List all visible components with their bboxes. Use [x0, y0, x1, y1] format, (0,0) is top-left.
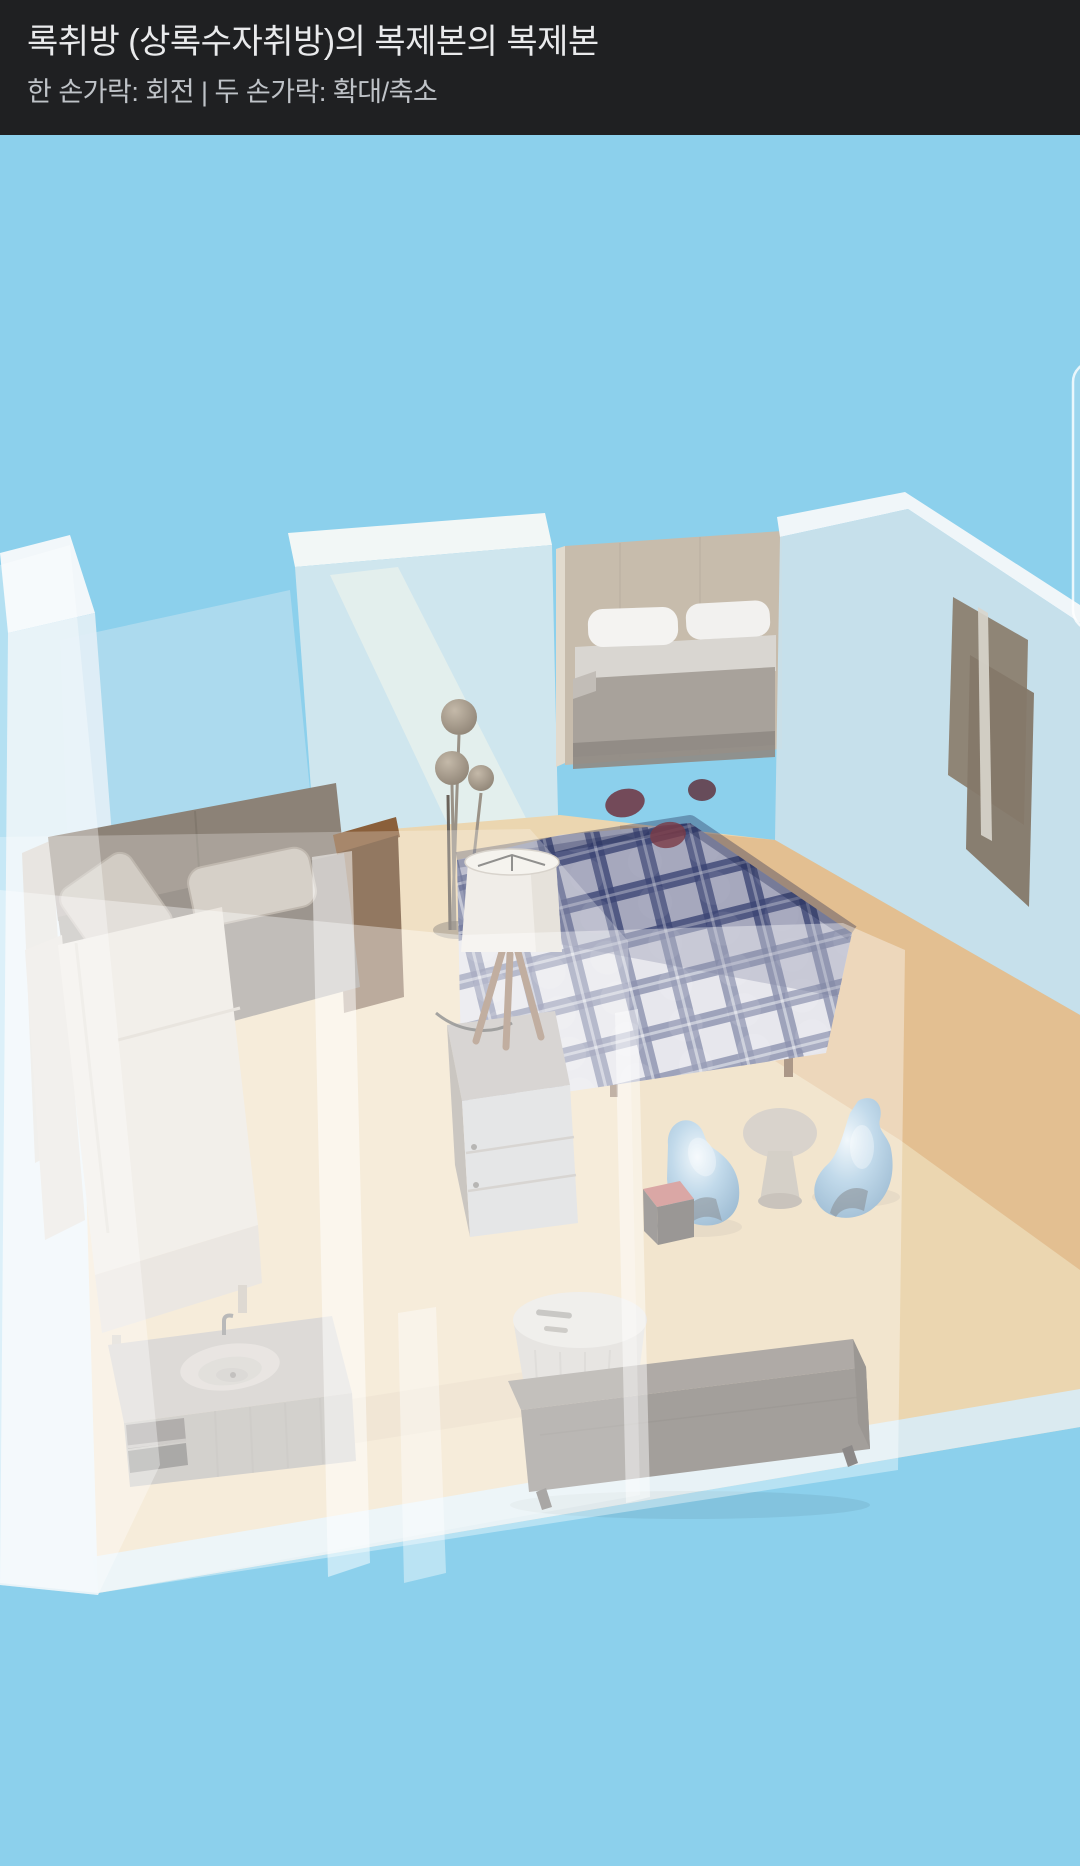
- lamp-globe[interactable]: [441, 699, 477, 735]
- maroon-pillow: [688, 779, 716, 801]
- room-3d-viewport[interactable]: [0, 135, 1080, 1866]
- header: 록취방 (상록수자취방)의 복제본의 복제본 한 손가락: 회전 | 두 손가락…: [0, 0, 1080, 135]
- gesture-hint: 한 손가락: 회전 | 두 손가락: 확대/축소: [27, 70, 1080, 109]
- room-3d-canvas[interactable]: [0, 135, 1080, 1866]
- alcove-wall-edge: [556, 546, 565, 767]
- side-panel-handle[interactable]: [1073, 362, 1080, 630]
- lamp-globe[interactable]: [435, 751, 469, 785]
- room-planner-app: 록취방 (상록수자취방)의 복제본의 복제본 한 손가락: 회전 | 두 손가락…: [0, 0, 1080, 1866]
- pillow: [685, 600, 771, 640]
- room-title: 록취방 (상록수자취방)의 복제본의 복제본: [27, 20, 1080, 64]
- pillow: [587, 606, 678, 647]
- alcove-bed[interactable]: [573, 600, 776, 769]
- lamp-globe[interactable]: [468, 765, 494, 791]
